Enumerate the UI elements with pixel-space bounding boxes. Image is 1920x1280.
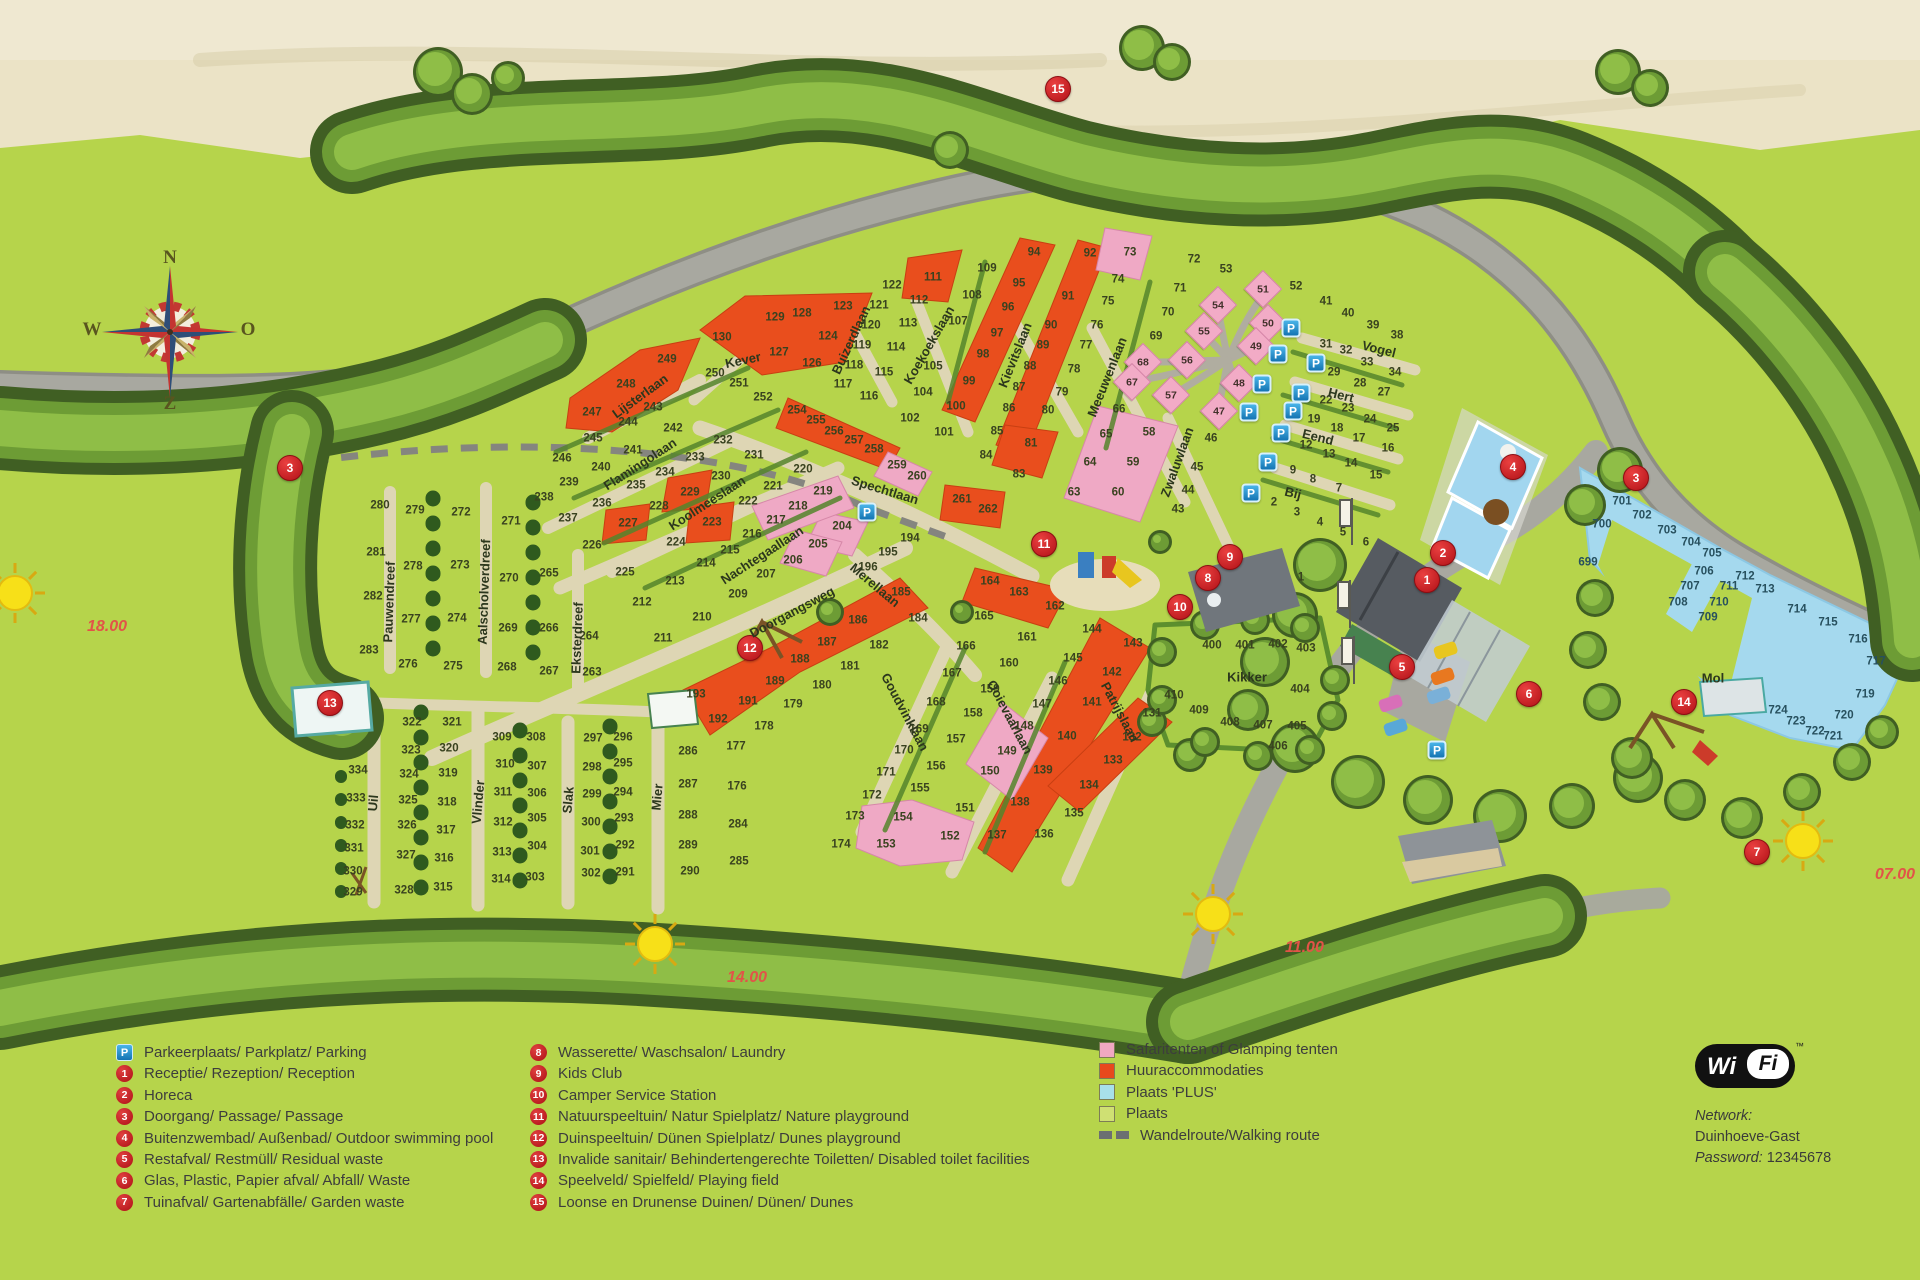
lane-label: Slak: [560, 786, 575, 814]
plot-number-blue: 722: [1805, 726, 1824, 738]
plot-number-green: 160: [999, 658, 1018, 670]
plot-number-green: 174: [831, 839, 850, 851]
plot-number-green: 251: [729, 378, 748, 390]
legend-item: 8Wasserette/ Waschsalon/ Laundry: [530, 1044, 1030, 1061]
plot-number-pink: 153: [876, 839, 895, 851]
plot-number-green: 306: [527, 788, 546, 800]
plot-number-orange: 141: [1082, 697, 1101, 709]
plot-number-green: 299: [582, 789, 601, 801]
plot-number-green: 284: [728, 819, 747, 831]
plot-number-pink: 154: [893, 812, 912, 824]
plot-number-green: 404: [1290, 684, 1309, 696]
plot-number-green: 279: [405, 505, 424, 517]
plot-number-blue: 700: [1592, 519, 1611, 531]
legend-number-icon: 8: [530, 1044, 547, 1061]
sun-icon: 14.00: [655, 944, 723, 1012]
plot-number-green: 184: [908, 613, 927, 625]
compass-west: W: [83, 319, 102, 341]
plot-number-green: 179: [783, 699, 802, 711]
plot-number-green: 224: [666, 537, 685, 549]
plot-number-green: 309: [492, 732, 511, 744]
plot-number-green: 267: [539, 666, 558, 678]
plot-number-green: 325: [398, 795, 417, 807]
plot-number-blue: 704: [1681, 537, 1700, 549]
plot-number-green: 328: [394, 885, 413, 897]
plot-number-pink: 217: [766, 515, 785, 527]
plot-number-orange: 95: [1013, 278, 1026, 290]
plot-number-green: 155: [910, 783, 929, 795]
legend-column-activities: 8Wasserette/ Waschsalon/ Laundry9Kids Cl…: [530, 1044, 1030, 1211]
facility-marker-2: 2: [1430, 540, 1456, 566]
legend-item: 11Natuurspeeltuin/ Natur Spielplatz/ Nat…: [530, 1108, 1030, 1125]
legend-label: Safaritenten of Glamping tenten: [1126, 1041, 1338, 1058]
wifi-logo-fi: Fi: [1759, 1049, 1778, 1079]
plot-number-blue: 713: [1755, 584, 1774, 596]
plot-number-green: 24: [1364, 414, 1377, 426]
facility-marker-12: 12: [737, 635, 763, 661]
lane-label: Goudvinklaan: [879, 671, 931, 753]
lane-label: Mol: [1702, 672, 1724, 685]
plot-number-green: 228: [649, 501, 668, 513]
plot-number-green: 244: [618, 417, 637, 429]
plot-number-green: 282: [363, 591, 382, 603]
plot-number-green: 195: [878, 547, 897, 559]
plot-number-green: 170: [894, 745, 913, 757]
plot-number-green: 291: [615, 867, 634, 879]
plot-number-green: 312: [493, 817, 512, 829]
plot-number-blue: 719: [1855, 689, 1874, 701]
plot-number-green: 9: [1290, 465, 1296, 477]
plot-number-green: 237: [558, 513, 577, 525]
plot-number-green: 176: [727, 781, 746, 793]
legend-label: Camper Service Station: [558, 1087, 716, 1104]
facility-marker-8: 8: [1195, 565, 1221, 591]
legend-column-facilities: PParkeerplaats/ Parkplatz/ Parking1Recep…: [116, 1044, 493, 1211]
plot-number-pink: 205: [808, 539, 827, 551]
plot-number-orange: 254: [787, 405, 806, 417]
plot-number-green: 83: [1013, 469, 1026, 481]
plot-number-blue: 710: [1709, 597, 1728, 609]
plot-number-green: 269: [498, 623, 517, 635]
plot-number-green: 108: [962, 290, 981, 302]
plot-number-green: 221: [763, 481, 782, 493]
plot-number-green: 324: [399, 769, 418, 781]
legend-number-icon: 7: [116, 1194, 133, 1211]
plot-number-green: 313: [492, 847, 511, 859]
plot-number-orange: 100: [946, 401, 965, 413]
plot-number-green: 331: [344, 843, 363, 855]
plot-number-orange: 139: [1033, 765, 1052, 777]
plot-number-green: 280: [370, 500, 389, 512]
plot-number-orange: 257: [844, 435, 863, 447]
plot-number-green: 276: [398, 659, 417, 671]
parking-icon: P: [1428, 741, 1447, 760]
plot-number-green: 5: [1340, 527, 1346, 539]
plot-number-green: 277: [401, 614, 420, 626]
plot-number-green: 74: [1112, 274, 1125, 286]
plot-number-green: 180: [812, 680, 831, 692]
plot-number-green: 178: [754, 721, 773, 733]
facility-marker-1: 1: [1414, 567, 1440, 593]
plot-number-green: 297: [583, 733, 602, 745]
parking-icon: P: [1269, 345, 1288, 364]
lane-label: Bij: [1283, 485, 1302, 502]
sun-time: 07.00: [1875, 866, 1915, 884]
plus-swatch: [1099, 1084, 1115, 1100]
legend-item: 12Duinspeeltuin/ Dünen Spielplatz/ Dunes…: [530, 1130, 1030, 1147]
plot-number-green: 270: [499, 573, 518, 585]
plot-number-green: 77: [1080, 340, 1093, 352]
plot-number-green: 146: [1048, 676, 1067, 688]
plot-number-green: 318: [437, 797, 456, 809]
plot-number-green: 156: [926, 761, 945, 773]
plot-number-green: 327: [396, 850, 415, 862]
plot-number-green: 330: [343, 866, 362, 878]
plot-number-blue: 715: [1818, 617, 1837, 629]
plot-number-green: 182: [869, 640, 888, 652]
plot-number-green: 300: [581, 817, 600, 829]
plot-number-green: 403: [1296, 643, 1315, 655]
sun-icon: 11.00: [1213, 914, 1281, 982]
plot-number-pink: 60: [1112, 487, 1125, 499]
plot-number-green: 216: [742, 529, 761, 541]
parking-icon: P: [116, 1044, 133, 1061]
plot-number-blue: 709: [1698, 612, 1717, 624]
plot-number-orange: 98: [977, 349, 990, 361]
plot-number-green: 239: [559, 477, 578, 489]
plot-number-green: 113: [899, 318, 918, 330]
plot-number-orange: 255: [806, 415, 825, 427]
facility-marker-10: 10: [1167, 594, 1193, 620]
plot-number-orange: 248: [616, 379, 635, 391]
legend-number-icon: 13: [530, 1151, 547, 1168]
plot-number-orange: 189: [765, 676, 784, 688]
legend-label: Kids Club: [558, 1065, 622, 1082]
plot-number-green: 3: [1294, 507, 1300, 519]
legend-item: 14Speelveld/ Spielfeld/ Playing field: [530, 1172, 1030, 1189]
plot-number-orange: 164: [980, 576, 999, 588]
legend-label: Horeca: [144, 1087, 192, 1104]
plot-number-green: 294: [613, 787, 632, 799]
plot-number-green: 323: [401, 745, 420, 757]
plot-number-green: 334: [348, 765, 367, 777]
plot-number-green: 286: [678, 746, 697, 758]
plot-number-green: 207: [756, 569, 775, 581]
plot-number-green: 117: [834, 379, 853, 391]
lane-label: Uil: [366, 794, 380, 812]
plot-number-green: 45: [1191, 462, 1204, 474]
plot-number-green: 177: [726, 741, 745, 753]
plot-number-green: 72: [1188, 254, 1201, 266]
plot-number-green: 233: [685, 452, 704, 464]
wifi-network-label: Network:: [1695, 1108, 1752, 1124]
plot-number-green: 305: [527, 813, 546, 825]
plot-number-green: 32: [1340, 345, 1353, 357]
plot-number-green: 268: [497, 662, 516, 674]
wifi-network-name: Duinhoeve-Gast: [1695, 1129, 1800, 1145]
compass-north: N: [163, 247, 177, 269]
parking-icon: P: [1272, 424, 1291, 443]
plot-number-blue: 702: [1632, 510, 1651, 522]
legend-label: Receptie/ Rezeption/ Reception: [144, 1065, 355, 1082]
legend-item: PParkeerplaats/ Parkplatz/ Parking: [116, 1044, 493, 1061]
sun-icon: 07.00: [1803, 841, 1871, 909]
safari-tent-plot: 47: [1200, 392, 1238, 430]
plot-number-green: 236: [592, 498, 611, 510]
legend-label: Glas, Plastic, Papier afval/ Abfall/ Was…: [144, 1172, 410, 1189]
plot-number-green: 66: [1113, 404, 1126, 416]
facility-marker-11: 11: [1031, 531, 1057, 557]
legend-number-icon: 10: [530, 1087, 547, 1104]
plot-number-green: 232: [713, 435, 732, 447]
plot-number-pink: 150: [980, 766, 999, 778]
plot-number-orange: 86: [1003, 403, 1016, 415]
facility-marker-4: 4: [1500, 454, 1526, 480]
plot-number-green: 84: [980, 450, 993, 462]
plot-number-green: 301: [580, 846, 599, 858]
legend-item: 15Loonse en Drunense Duinen/ Dünen/ Dune…: [530, 1194, 1030, 1211]
plot-number-pink: 219: [813, 486, 832, 498]
plot-number-green: 7: [1336, 483, 1342, 495]
plot-number-green: 76: [1091, 320, 1104, 332]
plot-number-orange: 249: [657, 354, 676, 366]
plot-number-green: 408: [1220, 717, 1239, 729]
plot-number-blue: 707: [1680, 581, 1699, 593]
plot-number-green: 210: [692, 612, 711, 624]
plot-number-orange: 191: [738, 696, 757, 708]
lane-label: Kever: [724, 350, 762, 370]
wifi-password-label: Password:: [1695, 1150, 1763, 1166]
plot-number-green: 266: [539, 623, 558, 635]
plot-number-green: 319: [438, 768, 457, 780]
legend-item: 3Doorgang/ Passage/ Passage: [116, 1108, 493, 1125]
parking-icon: P: [858, 503, 877, 522]
legend-item: 2Horeca: [116, 1087, 493, 1104]
plot-number-green: 13: [1323, 449, 1336, 461]
legend-item: 5Restafval/ Restmüll/ Residual waste: [116, 1151, 493, 1168]
plot-number-orange: 247: [582, 407, 601, 419]
plot-number-green: 295: [613, 758, 632, 770]
plot-number-green: 322: [402, 717, 421, 729]
compass-south: Z: [164, 393, 177, 415]
legend-item: 7Tuinafval/ Gartenabfälle/ Garden waste: [116, 1194, 493, 1211]
plot-number-green: 165: [974, 611, 993, 623]
plot-number-green: 252: [753, 392, 772, 404]
plot-number-green: 287: [678, 779, 697, 791]
legend-label: Loonse en Drunense Duinen/ Dünen/ Dunes: [558, 1194, 853, 1211]
plot-number-green: 39: [1367, 320, 1380, 332]
plot-number-green: 46: [1205, 433, 1218, 445]
legend-label: Doorgang/ Passage/ Passage: [144, 1108, 343, 1125]
legend-number-icon: 9: [530, 1065, 547, 1082]
plot-number-green: 181: [840, 661, 859, 673]
walking-route-swatch: [1099, 1131, 1129, 1139]
plot-number-green: 122: [882, 280, 901, 292]
plot-number-green: 63: [1068, 487, 1081, 499]
plot-number-green: 102: [900, 413, 919, 425]
legend-label: Natuurspeeltuin/ Natur Spielplatz/ Natur…: [558, 1108, 909, 1125]
parking-icon: P: [1282, 319, 1301, 338]
plot-number-blue: 723: [1786, 716, 1805, 728]
facility-marker-15: 15: [1045, 76, 1071, 102]
plot-number-green: 28: [1354, 378, 1367, 390]
plot-number-green: 283: [359, 645, 378, 657]
plot-number-green: 145: [1063, 653, 1082, 665]
plot-number-green: 78: [1068, 364, 1081, 376]
plot-number-green: 158: [963, 708, 982, 720]
plot-number-green: 235: [626, 480, 645, 492]
plot-number-green: 209: [728, 589, 747, 601]
wifi-logo: Wi Fi ™: [1695, 1040, 1805, 1092]
plot-number-green: 272: [451, 507, 470, 519]
plot-number-green: 302: [581, 868, 600, 880]
facility-marker-9: 9: [1217, 544, 1243, 570]
plot-number-green: 109: [977, 263, 996, 275]
lane-label: Patrijslaan: [1099, 680, 1141, 744]
plot-number-orange: 92: [1084, 248, 1097, 260]
plot-number-green: 31: [1320, 339, 1333, 351]
plot-number-green: 220: [793, 464, 812, 476]
plot-number-orange: 97: [991, 328, 1004, 340]
plot-number-orange: 137: [987, 830, 1006, 842]
legend-number-icon: 11: [530, 1108, 547, 1125]
plot-number-orange: 90: [1045, 320, 1058, 332]
plot-number-green: 303: [525, 872, 544, 884]
plot-number-green: 173: [845, 811, 864, 823]
plot-number-orange: 134: [1079, 780, 1098, 792]
plot-number-green: 265: [539, 568, 558, 580]
facility-marker-7: 7: [1744, 839, 1770, 865]
parking-icon: P: [1292, 384, 1311, 403]
legend-number-icon: 12: [530, 1130, 547, 1147]
plot-number-green: 215: [720, 545, 739, 557]
plot-number-green: 17: [1353, 433, 1366, 445]
plot-number-green: 273: [450, 560, 469, 572]
plot-number-green: 402: [1268, 639, 1287, 651]
plot-number-blue: 720: [1834, 710, 1853, 722]
plot-number-green: 263: [582, 667, 601, 679]
plot-number-green: 315: [433, 882, 452, 894]
plot-number-orange: 138: [1010, 797, 1029, 809]
plot-number-blue: 701: [1612, 496, 1631, 508]
plot-number-pink: 73: [1124, 247, 1137, 259]
plot-number-blue: 721: [1823, 731, 1842, 743]
plot-number-green: 114: [887, 342, 906, 354]
plot-number-green: 8: [1310, 474, 1316, 486]
plot-number-green: 69: [1150, 331, 1163, 343]
parking-icon: P: [1259, 453, 1278, 472]
plot-number-green: 29: [1328, 367, 1341, 379]
plot-number-green: 52: [1290, 281, 1303, 293]
legend-item: 4Buitenzwembad/ Außenbad/ Outdoor swimmi…: [116, 1130, 493, 1147]
plot-number-green: 115: [875, 367, 894, 379]
plot-number-orange: 223: [702, 517, 721, 529]
plot-number-orange: 133: [1103, 755, 1122, 767]
plot-number-blue: 712: [1735, 571, 1754, 583]
plot-number-orange: 162: [1045, 601, 1064, 613]
plot-number-blue: 699: [1578, 557, 1597, 569]
parking-icon: P: [1284, 402, 1303, 421]
legend-label: Plaats 'PLUS': [1126, 1084, 1217, 1101]
legend-item: Plaats 'PLUS': [1099, 1084, 1338, 1101]
plot-number-orange: 229: [680, 487, 699, 499]
plot-number-orange: 140: [1057, 731, 1076, 743]
plot-number-green: 293: [614, 813, 633, 825]
plot-number-green: 167: [942, 668, 961, 680]
plot-number-green: 310: [495, 759, 514, 771]
plot-number-green: 104: [913, 387, 932, 399]
plot-number-blue: 708: [1668, 597, 1687, 609]
plot-number-orange: 91: [1062, 291, 1075, 303]
legend-number-icon: 15: [530, 1194, 547, 1211]
plot-number-pink: 59: [1127, 457, 1140, 469]
plot-number-pink: 218: [788, 501, 807, 513]
plot-number-orange: 261: [952, 494, 971, 506]
plot-number-green: 4: [1317, 517, 1323, 529]
plot-number-green: 289: [678, 840, 697, 852]
plot-number-green: 222: [738, 496, 757, 508]
lane-label: Doorgangsweg: [747, 584, 836, 640]
facility-marker-13: 13: [317, 690, 343, 716]
parking-icon: P: [1242, 484, 1261, 503]
plot-number-green: 240: [591, 462, 610, 474]
parking-icon: P: [1240, 403, 1259, 422]
plot-number-orange: 96: [1002, 302, 1015, 314]
lane-label: Mier: [649, 783, 664, 811]
plot-number-pink: 152: [940, 831, 959, 843]
wifi-tm: ™: [1795, 1040, 1804, 1053]
plot-number-green: 307: [527, 761, 546, 773]
plot-number-orange: 144: [1082, 624, 1101, 636]
plot-number-orange: 187: [817, 637, 836, 649]
plot-number-green: 329: [343, 887, 362, 899]
rental-swatch: [1099, 1063, 1115, 1079]
plot-number-green: 242: [663, 423, 682, 435]
plot-number-green: 23: [1342, 403, 1355, 415]
plot-number-green: 157: [946, 734, 965, 746]
plot-number-green: 33: [1361, 357, 1374, 369]
plot-number-green: 136: [1034, 829, 1053, 841]
lane-label: Vlinder: [470, 779, 487, 824]
plot-number-green: 308: [526, 732, 545, 744]
plot-number-blue: 714: [1787, 604, 1806, 616]
plot-number-green: 123: [833, 301, 852, 313]
plot-number-green: 231: [744, 450, 763, 462]
plot-number-green: 15: [1370, 470, 1383, 482]
plot-number-green: 285: [729, 856, 748, 868]
facility-marker-3: 3: [1623, 465, 1649, 491]
legend-item: 1Receptie/ Rezeption/ Reception: [116, 1065, 493, 1082]
plot-number-green: 64: [1084, 457, 1097, 469]
legend-label: Duinspeeltuin/ Dünen Spielplatz/ Dunes p…: [558, 1130, 901, 1147]
legend-label: Plaats: [1126, 1105, 1168, 1122]
plot-number-orange: 88: [1024, 361, 1037, 373]
plot-number-green: 38: [1391, 330, 1404, 342]
plot-number-orange: 127: [769, 347, 788, 359]
wifi-panel: Wi Fi ™ Network: Duinhoeve-Gast Password…: [1695, 1040, 1831, 1169]
plot-number-orange: 128: [792, 308, 811, 320]
plot-number-orange: 163: [1009, 587, 1028, 599]
legend-label: Tuinafval/ Gartenabfälle/ Garden waste: [144, 1194, 404, 1211]
plot-number-green: 407: [1253, 720, 1272, 732]
plot-number-pink: 204: [832, 521, 851, 533]
plot-number-green: 172: [862, 790, 881, 802]
plot-number-orange: 256: [824, 426, 843, 438]
plot-number-green: 316: [434, 853, 453, 865]
legend-number-icon: 5: [116, 1151, 133, 1168]
legend-number-icon: 2: [116, 1087, 133, 1104]
plot-number-green: 246: [552, 453, 571, 465]
